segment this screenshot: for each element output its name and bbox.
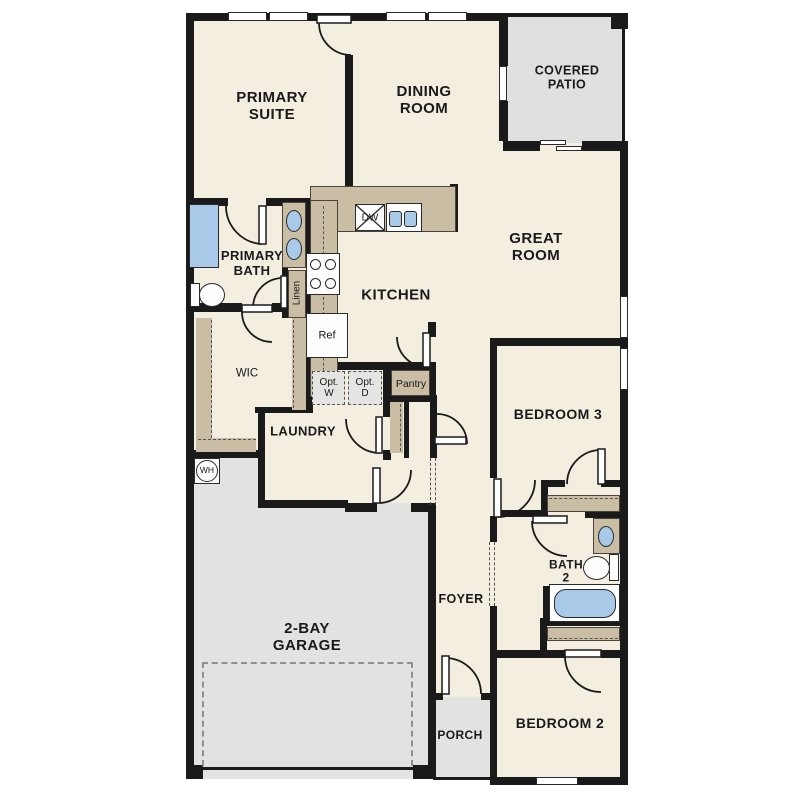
door-leaf bbox=[317, 15, 351, 23]
door-arc bbox=[242, 312, 272, 342]
room-label-covered-patio: COVERED PATIO bbox=[535, 64, 600, 93]
label-water-heater: WH bbox=[200, 466, 214, 476]
door-leaf bbox=[598, 449, 605, 484]
door-leaf bbox=[281, 276, 287, 308]
door-arc bbox=[253, 278, 283, 308]
door-leaf bbox=[494, 479, 501, 517]
door-leaf bbox=[423, 333, 430, 367]
label-opt-dryer: Opt. D bbox=[356, 377, 375, 399]
label-dishwasher: DW bbox=[362, 212, 379, 224]
door-arc bbox=[445, 658, 481, 694]
door-arc bbox=[380, 470, 411, 503]
room-label-pantry: Pantry bbox=[396, 378, 426, 390]
room-label-bath-2: BATH 2 bbox=[549, 558, 583, 583]
label-refrigerator: Ref bbox=[318, 330, 335, 343]
door-leaf bbox=[259, 206, 266, 244]
door-arc bbox=[319, 23, 351, 55]
label-opt-washer: Opt. W bbox=[320, 377, 339, 399]
room-label-garage: 2-BAY GARAGE bbox=[273, 620, 341, 655]
door-arc bbox=[346, 419, 380, 453]
room-label-primary-suite: PRIMARY SUITE bbox=[236, 89, 307, 124]
room-label-laundry: LAUNDRY bbox=[270, 425, 336, 440]
door-leaf bbox=[565, 650, 601, 657]
door-arc bbox=[226, 206, 262, 244]
label-linen: Linen bbox=[291, 281, 303, 305]
door-leaf bbox=[376, 417, 382, 453]
room-label-bedroom-3: BEDROOM 3 bbox=[514, 406, 602, 422]
room-label-foyer: FOYER bbox=[438, 592, 483, 606]
door-leaf bbox=[373, 468, 380, 503]
door-leaf bbox=[435, 437, 466, 444]
door-arc bbox=[565, 657, 601, 692]
room-label-primary-bath: PRIMARY BATH bbox=[221, 249, 283, 279]
door-leaf bbox=[242, 305, 272, 312]
room-label-wic: WIC bbox=[236, 367, 258, 380]
room-label-great-room: GREAT ROOM bbox=[509, 230, 562, 265]
door-arc bbox=[567, 450, 601, 484]
room-label-kitchen: KITCHEN bbox=[361, 286, 430, 303]
room-label-bedroom-2: BEDROOM 2 bbox=[516, 715, 604, 731]
door-leaf bbox=[533, 516, 567, 523]
door-leaf bbox=[442, 656, 449, 694]
door-arc bbox=[498, 480, 535, 517]
room-label-dining-room: DINING ROOM bbox=[397, 83, 452, 118]
door-swings bbox=[0, 0, 810, 810]
door-arc bbox=[532, 521, 567, 556]
room-label-porch: PORCH bbox=[437, 729, 482, 743]
floor-plan: PRIMARY SUITE DINING ROOM COVERED PATIO … bbox=[0, 0, 810, 810]
